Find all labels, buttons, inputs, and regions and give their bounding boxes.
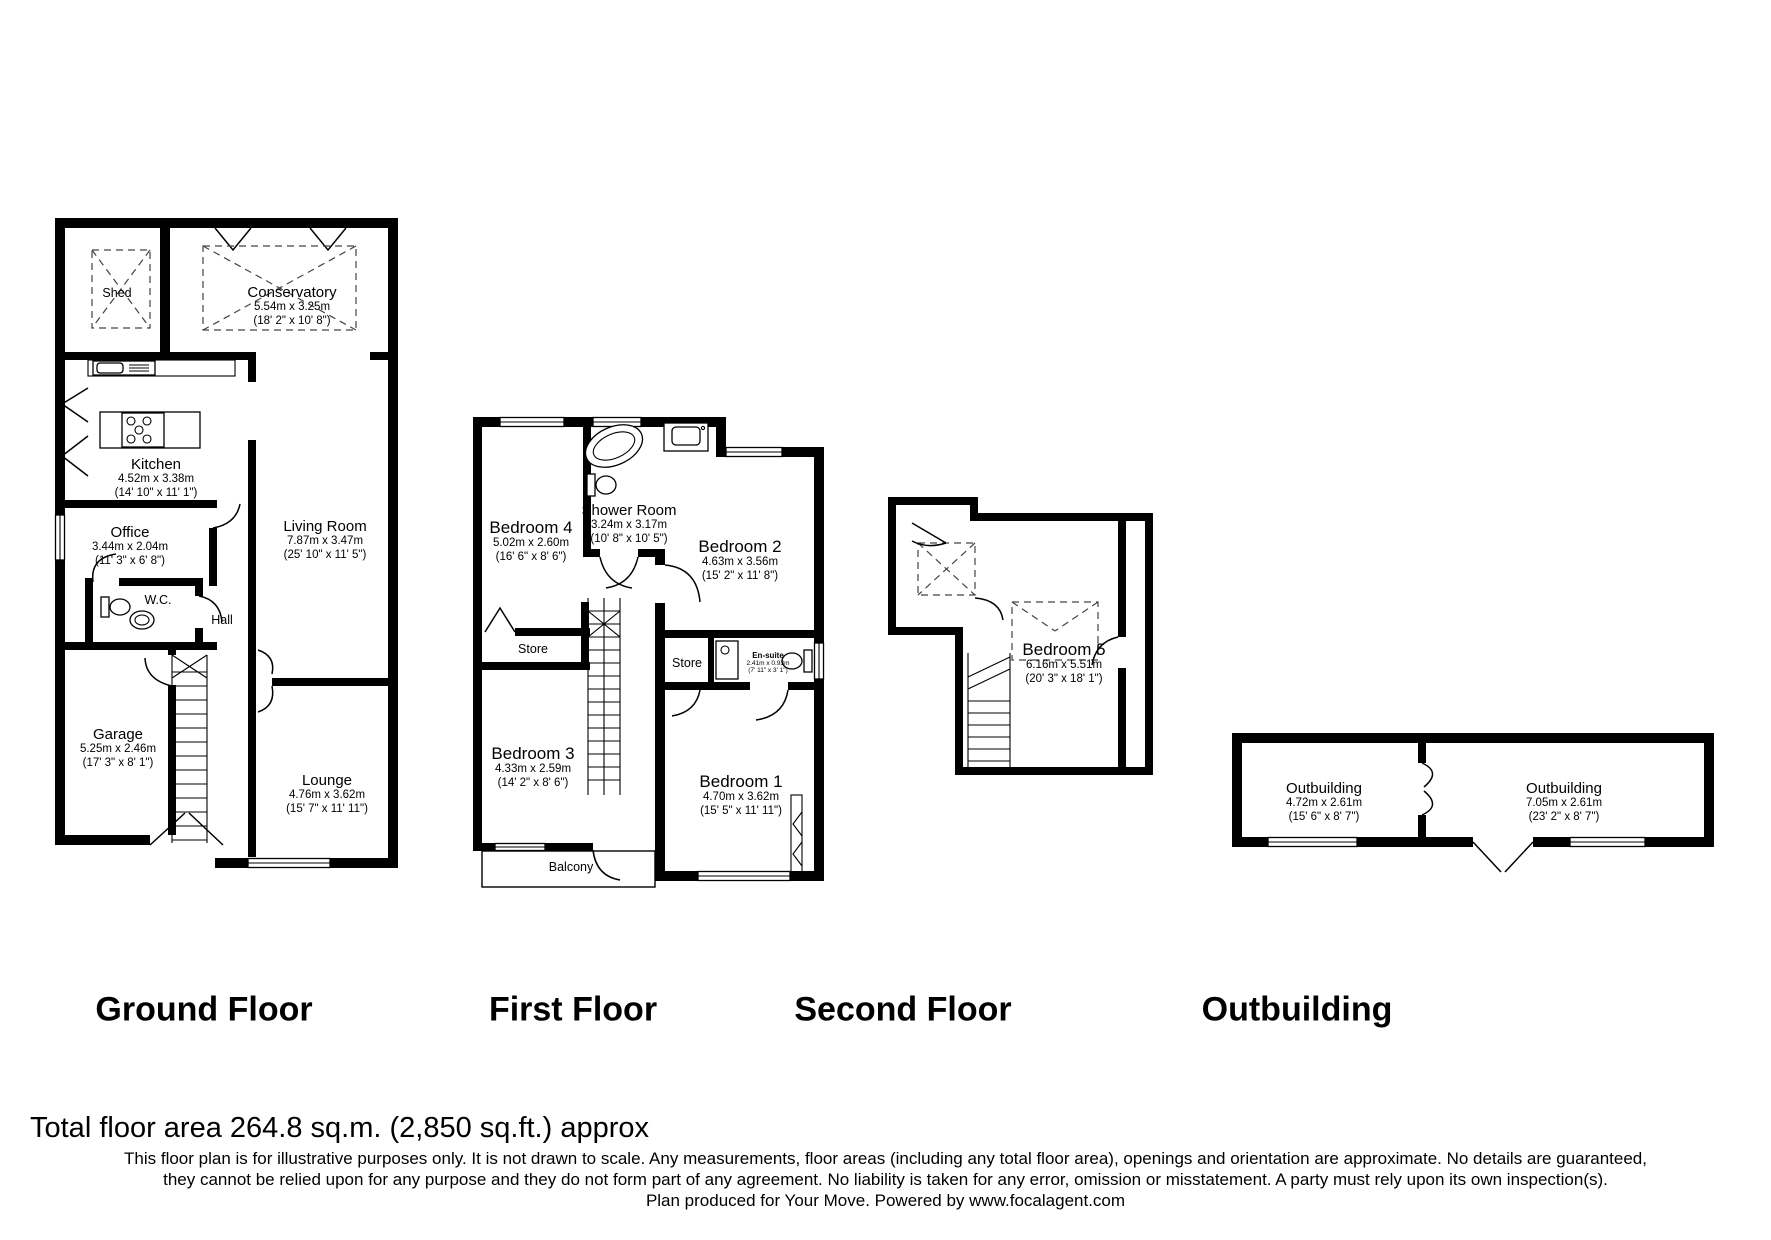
- store-door-arc: [672, 690, 700, 716]
- bedroom1-window: [698, 870, 790, 882]
- bedroom1-door-arc: [756, 690, 788, 720]
- ensuite-window: [813, 643, 825, 679]
- room-label-bedroom-4: Bedroom 4 5.02m x 2.60m (16' 6" x 8' 6"): [489, 518, 572, 564]
- room-label-en-suite: En-suite 2.41m x 0.93m (7' 11" x 3' 1"): [747, 652, 790, 674]
- disclaimer-line-2: they cannot be relied upon for any purpo…: [0, 1169, 1771, 1190]
- room-label-garage: Garage 5.25m x 2.46m (17' 3" x 8' 1"): [80, 726, 156, 770]
- heading-outbuilding: Outbuilding: [1202, 991, 1393, 1030]
- toilet-icon: [587, 474, 616, 496]
- room-label-hall: Hall: [211, 613, 233, 627]
- disclaimer: This floor plan is for illustrative purp…: [0, 1148, 1771, 1211]
- divider-door-marks: [1422, 763, 1433, 815]
- room-label-conservatory: Conservatory 5.54m x 3.25m (18' 2" x 10'…: [247, 284, 336, 328]
- room-label-bedroom-1: Bedroom 1 4.70m x 3.62m (15' 5" x 11' 11…: [699, 772, 782, 818]
- floorplan-drawing: [0, 0, 1771, 1240]
- bedroom2-window: [726, 446, 782, 458]
- lounge-door-arc: [258, 686, 273, 712]
- bedroom2-door-arc: [665, 565, 700, 602]
- room-label-shower-room: Shower Room 3.24m x 3.17m (10' 8" x 10' …: [581, 502, 676, 546]
- room-label-lounge: Lounge 4.76m x 3.62m (15' 7" x 11' 11"): [286, 772, 368, 816]
- bedroom4-door-mark: [485, 608, 515, 632]
- room-label-store-1: Store: [518, 642, 548, 656]
- bay-window-mark: [62, 436, 88, 476]
- room-label-bedroom-2: Bedroom 2 4.63m x 3.56m (15' 2" x 11' 8"…: [698, 537, 781, 583]
- second-floor-door-arc: [975, 598, 1003, 620]
- room-label-outbuilding-2: Outbuilding 7.05m x 2.61m (23' 2" x 8' 7…: [1526, 780, 1602, 824]
- disclaimer-line-3: Plan produced for Your Move. Powered by …: [0, 1190, 1771, 1211]
- second-floor-plan: [888, 497, 1153, 775]
- room-label-bedroom-3: Bedroom 3 4.33m x 2.59m (14' 2" x 8' 6"): [491, 744, 574, 790]
- heading-ground-floor: Ground Floor: [95, 991, 312, 1030]
- room-label-wc: W.C.: [144, 593, 171, 607]
- skylight-dashed-outline: [918, 543, 975, 595]
- garage-door-arc: [145, 658, 172, 686]
- basin-icon: [130, 611, 154, 629]
- heading-first-floor: First Floor: [489, 991, 657, 1030]
- room-label-bedroom-5: Bedroom 5 6.16m x 5.51m (20' 3" x 18' 1"…: [1022, 640, 1105, 686]
- floorplan-page: Shed Conservatory 5.54m x 3.25m (18' 2" …: [0, 0, 1771, 1240]
- heading-second-floor: Second Floor: [794, 991, 1011, 1030]
- bay-window-mark: [62, 388, 88, 422]
- shower-door-arc: [606, 557, 638, 588]
- total-floor-area: Total floor area 264.8 sq.m. (2,850 sq.f…: [30, 1112, 649, 1145]
- lounge-window: [248, 857, 330, 869]
- room-label-living-room: Living Room 7.87m x 3.47m (25' 10" x 11'…: [283, 518, 366, 562]
- hall-door-arc: [258, 650, 273, 674]
- first-floor-stairs: [588, 598, 620, 795]
- room-label-office: Office 3.44m x 2.04m (11' 3" x 6' 8"): [92, 524, 168, 568]
- outbuilding-window: [1570, 838, 1645, 847]
- room-label-balcony: Balcony: [549, 860, 593, 874]
- ground-stairs: [172, 655, 207, 843]
- second-floor-stairs: [968, 653, 1010, 767]
- second-floor-door-arc: [912, 523, 946, 546]
- office-door-arc: [213, 504, 240, 528]
- outbuilding-window: [1268, 838, 1357, 847]
- wardrobe-icon: [791, 795, 802, 873]
- disclaimer-line-1: This floor plan is for illustrative purp…: [0, 1148, 1771, 1169]
- bedroom4-window: [500, 416, 564, 428]
- conservatory-roof-marks: [215, 228, 346, 250]
- toilet-icon: [101, 597, 130, 617]
- office-window: [54, 515, 66, 560]
- room-label-shed: Shed: [102, 286, 131, 300]
- shower-door-arc: [600, 557, 632, 588]
- sink-icon: [664, 423, 708, 451]
- room-label-store-2: Store: [672, 656, 702, 670]
- room-label-outbuilding-1: Outbuilding 4.72m x 2.61m (15' 6" x 8' 7…: [1286, 780, 1362, 824]
- sink-icon: [93, 361, 155, 375]
- room-label-kitchen: Kitchen 4.52m x 3.38m (14' 10" x 11' 1"): [115, 456, 198, 500]
- shower-cubicle-icon: [716, 641, 738, 679]
- hob-icon: [100, 412, 200, 448]
